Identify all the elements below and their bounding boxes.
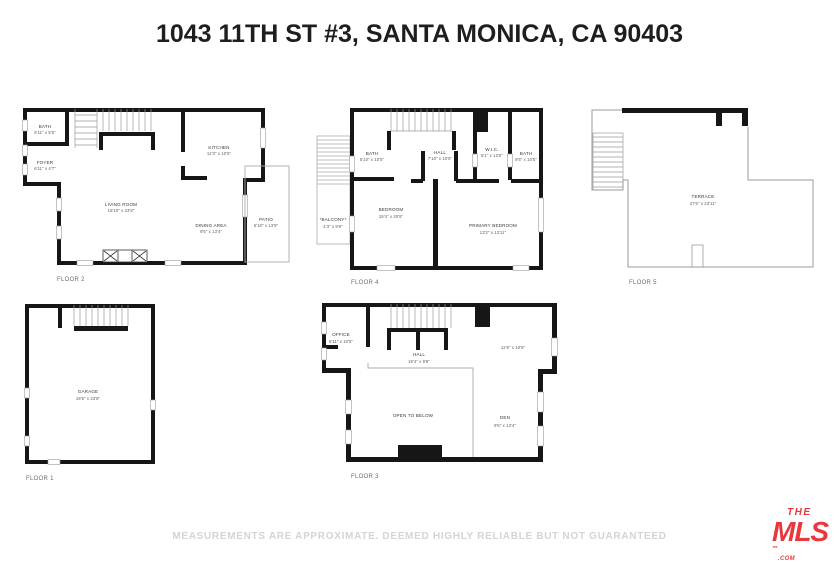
svg-text:DINING AREA: DINING AREA — [195, 223, 227, 228]
svg-text:PATIO: PATIO — [259, 217, 273, 222]
room-office: OFFICE6'11" x 10'5" — [329, 332, 353, 344]
svg-text:*BALCONY*: *BALCONY* — [320, 217, 347, 222]
room-hall: HALL19'4" x 9'8" — [408, 352, 430, 364]
room-garage: GARAGE19'5" x 23'8" — [76, 389, 101, 401]
svg-text:LIVING ROOM: LIVING ROOM — [105, 202, 137, 207]
floorplan-floor-5: TERRACE27'6" x 23'11" — [585, 100, 825, 275]
svg-text:5'10" x 13'9": 5'10" x 13'9" — [254, 223, 279, 228]
walls — [350, 108, 543, 270]
stairs-icon — [593, 133, 623, 190]
chimney-outline — [692, 245, 703, 267]
svg-text:12'6" x 10'5": 12'6" x 10'5" — [501, 345, 526, 350]
stairs-icon — [391, 109, 452, 131]
room-hall: HALL7'10" x 10'5" — [428, 150, 453, 161]
room-labels: OFFICE6'11" x 10'5" HALL19'4" x 9'8" 12'… — [329, 332, 526, 428]
svg-text:5'10" x 10'5": 5'10" x 10'5" — [360, 157, 385, 162]
walls — [322, 303, 557, 462]
floor-4-label: FLOOR 4 — [351, 280, 379, 286]
svg-text:BATH: BATH — [520, 151, 533, 156]
window-openings — [322, 322, 558, 446]
floorplan-floor-3: OFFICE6'11" x 10'5" HALL19'4" x 9'8" 12'… — [318, 300, 568, 470]
room-bath-right: BATH9'8" x 10'5" — [515, 151, 537, 162]
svg-text:6'11" x 5'5": 6'11" x 5'5" — [34, 130, 56, 135]
svg-text:4'3" x 9'8": 4'3" x 9'8" — [323, 224, 343, 229]
svg-text:OFFICE: OFFICE — [332, 332, 350, 337]
floor-1-label: FLOOR 1 — [26, 476, 54, 482]
fireplace-icon — [103, 250, 147, 262]
svg-text:6'11" x 4'7": 6'11" x 4'7" — [34, 166, 56, 171]
room-patio: PATIO5'10" x 13'9" — [254, 217, 279, 228]
themls-logo-com: .COM — [778, 556, 795, 562]
room-balcony: *BALCONY*4'3" x 9'8" — [320, 217, 347, 229]
page-title: 1043 11TH ST #3, SANTA MONICA, CA 90403 — [0, 20, 839, 49]
stairs-icon — [391, 304, 451, 328]
svg-text:15'4" x 20'5": 15'4" x 20'5" — [379, 214, 404, 219]
svg-text:9'5" x 13'4": 9'5" x 13'4" — [200, 229, 222, 234]
room-primary-bedroom: PRIMARY BEDROOM13'2" x 12'11" — [469, 223, 517, 235]
svg-text:DEN: DEN — [500, 415, 510, 420]
svg-text:BEDROOM: BEDROOM — [379, 207, 404, 212]
terrace-outline — [592, 110, 813, 267]
svg-text:18'10" x 23'8": 18'10" x 23'8" — [108, 208, 135, 213]
svg-text:KITCHEN: KITCHEN — [208, 145, 229, 150]
svg-text:13'2" x 12'11": 13'2" x 12'11" — [480, 230, 507, 235]
svg-text:27'6" x 23'11": 27'6" x 23'11" — [690, 201, 717, 206]
svg-text:W.I.C.: W.I.C. — [485, 147, 498, 152]
svg-text:FOYER: FOYER — [37, 160, 54, 165]
stairs-icon — [75, 109, 151, 148]
room-labels: TERRACE27'6" x 23'11" — [690, 194, 717, 206]
room-kitchen: KITCHEN12'3" x 10'5" — [207, 145, 232, 156]
svg-text:HALL: HALL — [434, 150, 446, 155]
disclaimer-text: MEASUREMENTS ARE APPROXIMATE. DEEMED HIG… — [0, 531, 839, 542]
walls — [25, 304, 155, 464]
room-wic: W.I.C.5'1" x 13'5" — [481, 147, 503, 158]
room-labels: BATH6'11" x 5'5" FOYER6'11" x 4'7" KITCH… — [34, 124, 278, 234]
svg-text:5'1" x 13'5": 5'1" x 13'5" — [481, 153, 503, 158]
trademark-symbol: ™ — [772, 546, 778, 552]
window-openings — [350, 154, 544, 270]
floorplan-floor-1: GARAGE19'5" x 23'8" — [18, 300, 168, 470]
room-open-to-below: OPEN TO BELOW — [393, 413, 434, 418]
room-den: DEN9'5" x 13'4" — [494, 415, 516, 428]
floor-5-label: FLOOR 5 — [629, 280, 657, 286]
svg-text:OPEN TO BELOW: OPEN TO BELOW — [393, 413, 434, 418]
walls — [622, 108, 748, 126]
svg-text:PRIMARY BEDROOM: PRIMARY BEDROOM — [469, 223, 517, 228]
svg-text:19'5" x 23'8": 19'5" x 23'8" — [76, 396, 101, 401]
floorplan-floor-2: BATH6'11" x 5'5" FOYER6'11" x 4'7" KITCH… — [15, 100, 305, 275]
room-loft-dims: 12'6" x 10'5" — [501, 345, 526, 350]
themls-logo-mls: MLS — [772, 518, 828, 546]
svg-text:7'10" x 10'5": 7'10" x 10'5" — [428, 156, 453, 161]
svg-text:HALL: HALL — [413, 352, 425, 357]
room-bath-left: BATH5'10" x 10'5" — [360, 151, 385, 162]
svg-text:9'5" x 13'4": 9'5" x 13'4" — [494, 423, 516, 428]
room-bath: BATH6'11" x 5'5" — [34, 124, 56, 135]
svg-text:12'3" x 10'5": 12'3" x 10'5" — [207, 151, 232, 156]
room-living: LIVING ROOM18'10" x 23'8" — [105, 202, 137, 213]
svg-text:BATH: BATH — [39, 124, 52, 129]
floorplan-floor-4: *BALCONY*4'3" x 9'8" BATH5'10" x 10'5" H… — [315, 98, 570, 283]
svg-text:9'8" x 10'5": 9'8" x 10'5" — [515, 157, 537, 162]
room-terrace: TERRACE27'6" x 23'11" — [690, 194, 717, 206]
open-to-below-railing — [368, 363, 473, 457]
svg-text:TERRACE: TERRACE — [691, 194, 714, 199]
room-foyer: FOYER6'11" x 4'7" — [34, 160, 56, 171]
walls — [23, 108, 265, 265]
stairs-icon — [74, 305, 128, 326]
svg-text:GARAGE: GARAGE — [78, 389, 99, 394]
themls-logo: THE MLS™.COM — [772, 508, 836, 562]
room-dining: DINING AREA9'5" x 13'4" — [195, 223, 227, 234]
floorplan-sheet: 1043 11TH ST #3, SANTA MONICA, CA 90403 — [0, 0, 839, 560]
svg-text:19'4" x 9'8": 19'4" x 9'8" — [408, 359, 430, 364]
room-labels: GARAGE19'5" x 23'8" — [76, 389, 101, 401]
floor-2-label: FLOOR 2 — [57, 277, 85, 283]
svg-text:BATH: BATH — [366, 151, 379, 156]
floor-3-label: FLOOR 3 — [351, 474, 379, 480]
svg-text:6'11" x 10'5": 6'11" x 10'5" — [329, 339, 353, 344]
room-bedroom: BEDROOM15'4" x 20'5" — [379, 207, 404, 219]
